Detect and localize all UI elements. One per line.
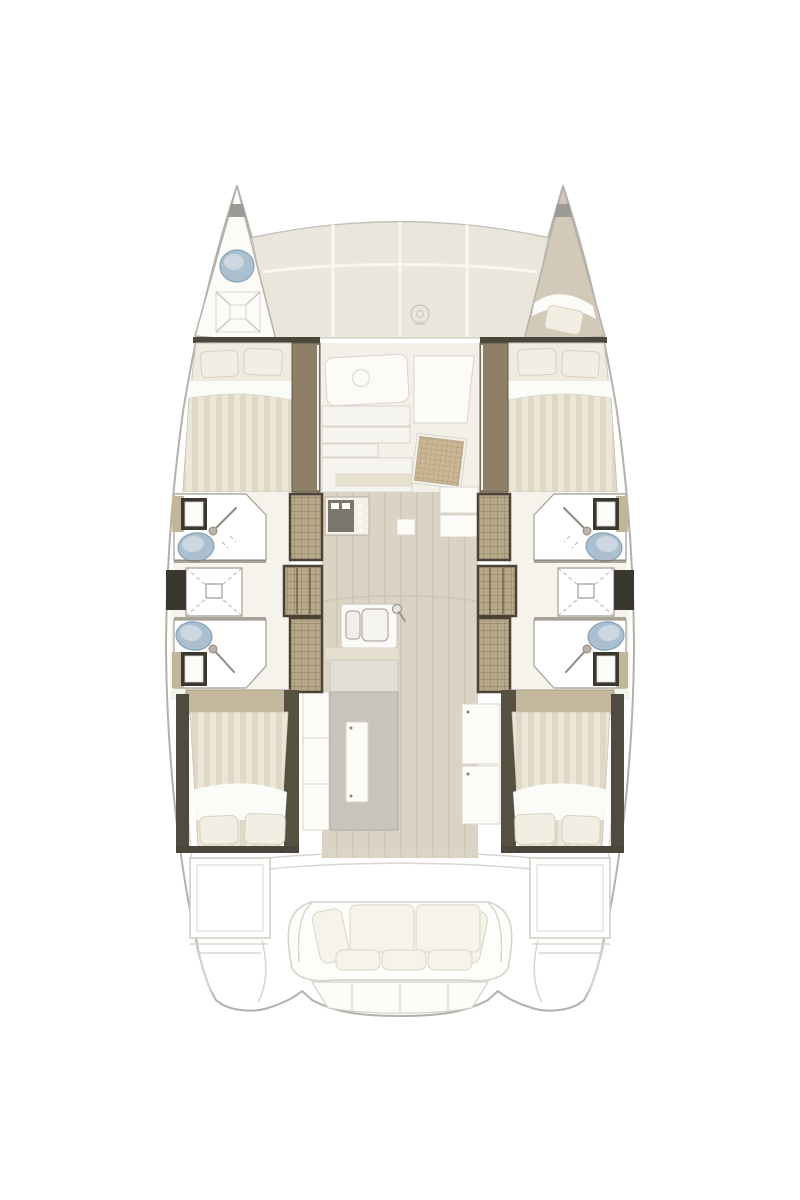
bed-pillow: [518, 348, 557, 375]
salon-settee: [414, 356, 474, 423]
sink-basin-large: [362, 609, 388, 641]
galley-counter: [322, 406, 410, 426]
bulkhead-forward-starboard: [480, 337, 607, 343]
salon-cabinet: [397, 519, 415, 535]
bed-pillow: [562, 815, 601, 844]
step-hatch: [290, 494, 322, 560]
companionway-starboard: [480, 343, 508, 492]
galley-counter-band: [336, 474, 412, 486]
bed-pillow: [514, 813, 555, 844]
bed-duvet: [183, 394, 292, 492]
bow-tip-cap: [554, 204, 572, 217]
shower-wand-head: [209, 645, 217, 653]
step-hatch: [478, 494, 510, 560]
galley-counter: [322, 427, 410, 443]
companionway-port: [292, 343, 320, 492]
step-hatch: [478, 618, 510, 692]
bed-duvet: [508, 394, 617, 492]
step-hatch: [284, 566, 322, 616]
back-cushion: [350, 905, 414, 952]
wall-line: [174, 560, 266, 563]
cabinet-column-starboard: [462, 704, 500, 824]
headboard: [502, 690, 614, 714]
bed-pillow: [244, 813, 285, 844]
washbasin: [185, 656, 203, 682]
foredeck: [252, 222, 548, 338]
cabinet-column-port: [303, 692, 329, 830]
island-door-handle: [350, 727, 353, 730]
step-hatch: [290, 618, 322, 692]
sink-basin-small: [346, 611, 360, 639]
bed-pillow: [200, 350, 238, 378]
galley-band: [325, 648, 399, 660]
salon-cabinet: [440, 487, 478, 513]
washbasin: [597, 656, 615, 682]
galley-block: [330, 660, 398, 692]
shower-cubicle: [558, 568, 614, 616]
side-locker-port: [190, 858, 270, 953]
side-locker-starboard: [530, 858, 610, 953]
cane-seat: [414, 436, 463, 485]
catamaran-floorplan: [0, 0, 800, 1200]
bathrooms-starboard: [508, 492, 634, 700]
forward-cabin-port: [183, 343, 320, 492]
seat-cushion: [336, 950, 380, 970]
bathrooms-port: [166, 492, 292, 700]
shower-wand-head: [209, 527, 217, 535]
galley-counter: [322, 444, 378, 457]
nav-seat: [411, 433, 467, 489]
forward-cabin-starboard: [480, 343, 617, 492]
bulkhead-forward-port: [193, 337, 320, 343]
bed-pillow: [561, 350, 599, 378]
bulkhead-dark: [166, 570, 186, 610]
bulkhead-dark: [614, 570, 634, 610]
bow-tip-cap: [228, 204, 246, 217]
island-door-handle: [350, 795, 353, 798]
shower-wand-head: [583, 645, 591, 653]
washbasin: [597, 502, 615, 526]
step-hatch: [478, 566, 516, 616]
shower-cubicle: [186, 568, 242, 616]
stove: [325, 497, 369, 535]
island-door: [346, 722, 368, 802]
cabin-post: [611, 694, 624, 846]
washbasin: [185, 502, 203, 526]
seat-cushion: [382, 950, 426, 970]
cabin-post: [176, 694, 189, 846]
bow-sink-basin: [224, 254, 244, 270]
bed-pillow: [200, 815, 239, 844]
back-cushion: [416, 905, 480, 952]
wall-line: [534, 560, 626, 563]
salon-table: [325, 354, 409, 406]
headboard: [186, 690, 298, 714]
aft-bulkhead: [501, 846, 624, 853]
stairs-starboard: [478, 494, 516, 692]
stairs-port: [284, 494, 322, 692]
anchor-locker: [216, 292, 260, 332]
salon-cabinet: [440, 515, 478, 537]
aft-bulkhead: [176, 846, 299, 853]
seat-cushion: [428, 950, 472, 970]
bed-pillow: [244, 348, 283, 375]
shower-wand-head: [583, 527, 591, 535]
